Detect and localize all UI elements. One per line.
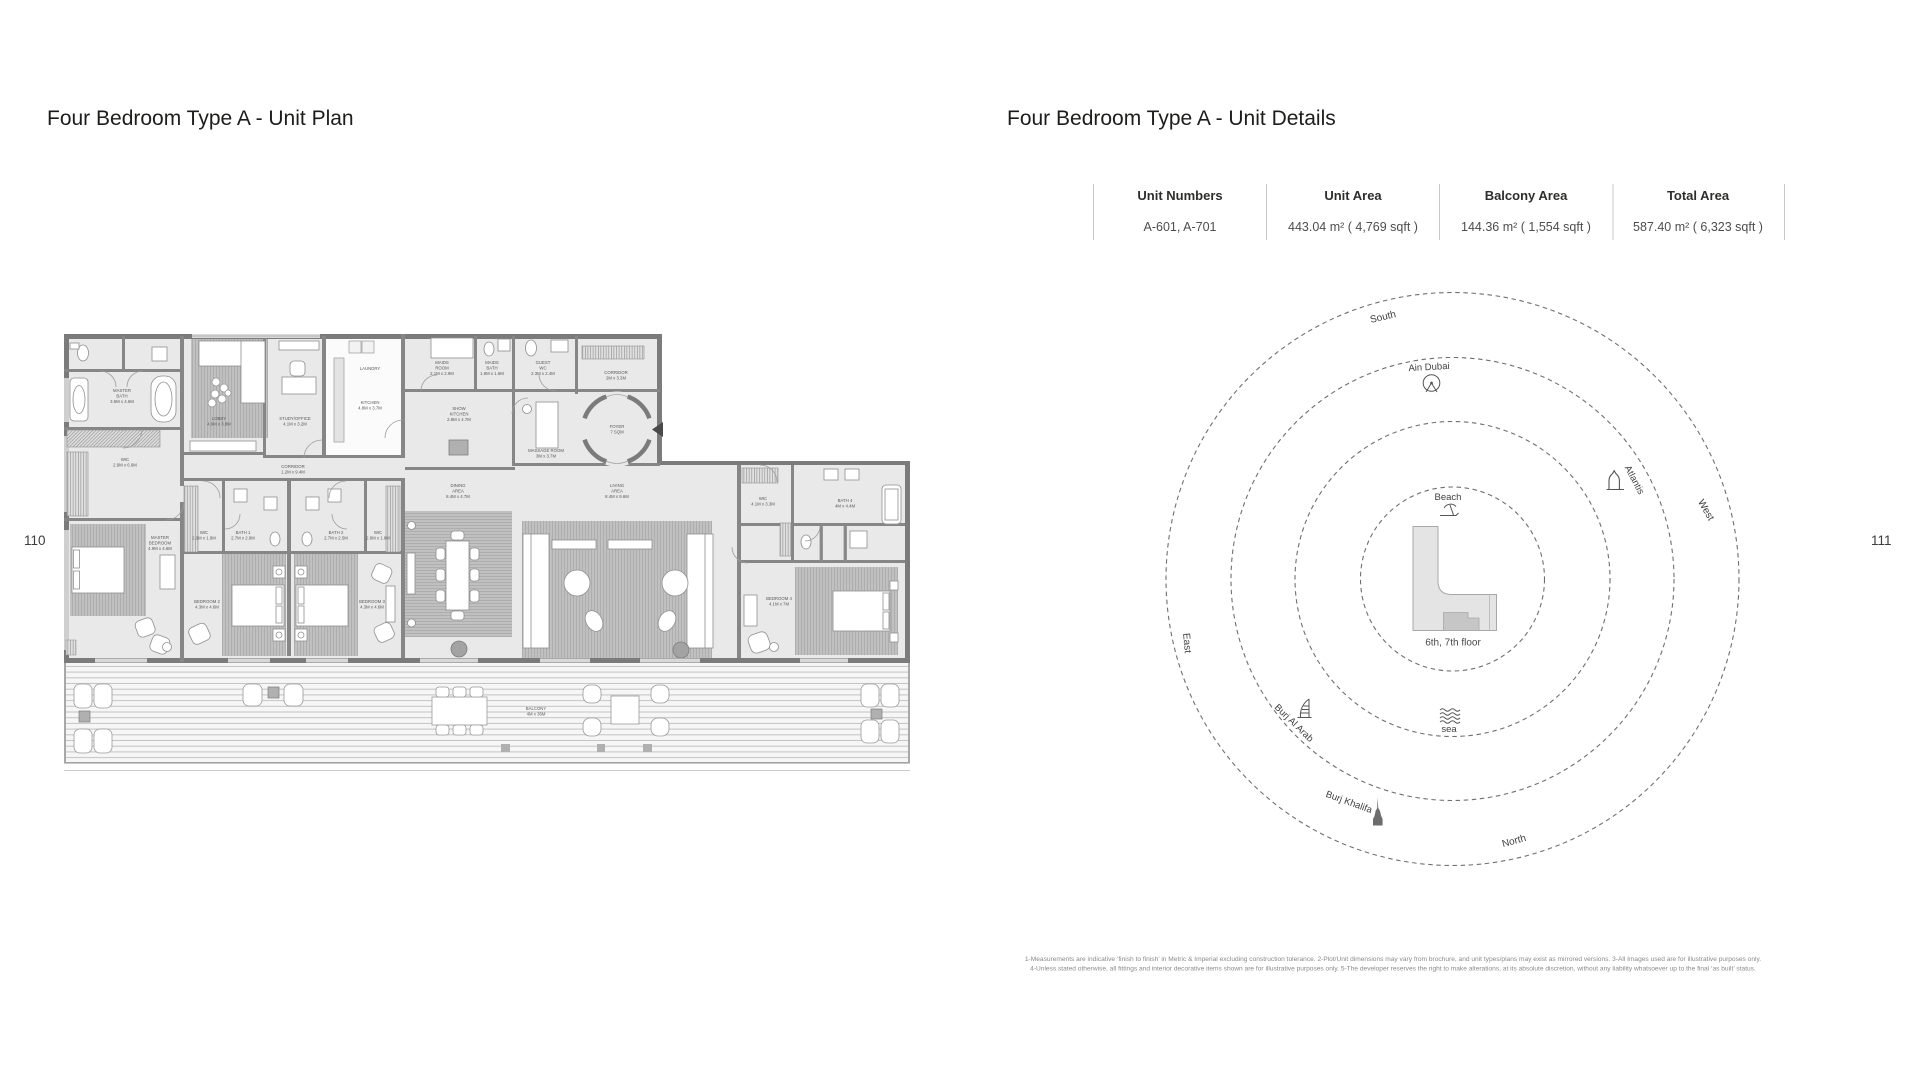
svg-text:BEDROOM 4: BEDROOM 4 — [766, 596, 792, 601]
svg-text:MASTER: MASTER — [151, 535, 169, 540]
svg-text:SHOW: SHOW — [452, 406, 466, 411]
svg-text:FOYER: FOYER — [610, 424, 625, 429]
svg-text:MAIDS: MAIDS — [435, 360, 449, 365]
svg-text:East: East — [1180, 633, 1193, 654]
svg-text:BATH: BATH — [116, 394, 127, 399]
svg-text:443.04 m² ( 4,769 sqft ): 443.04 m² ( 4,769 sqft ) — [1288, 220, 1418, 234]
svg-text:Four Bedroom Type A - Unit Pla: Four Bedroom Type A - Unit Plan — [47, 107, 354, 130]
svg-text:4M x 4.4M: 4M x 4.4M — [835, 504, 855, 509]
svg-text:8.4M x 9.6M: 8.4M x 9.6M — [605, 494, 629, 499]
svg-text:1.2M x 9.4M: 1.2M x 9.4M — [281, 470, 305, 475]
svg-text:2.8M x 4.7M: 2.8M x 4.7M — [447, 417, 471, 422]
svg-text:BATH: BATH — [486, 366, 497, 371]
svg-text:KITCHEN: KITCHEN — [450, 412, 469, 417]
svg-text:MAIDS: MAIDS — [485, 360, 499, 365]
svg-text:Beach: Beach — [1435, 492, 1462, 503]
svg-text:4.1M x 3.2M: 4.1M x 3.2M — [283, 422, 307, 427]
svg-text:DINING: DINING — [450, 483, 466, 488]
svg-text:AREA: AREA — [611, 489, 623, 494]
svg-text:110: 110 — [24, 533, 46, 548]
svg-text:Unit Area: Unit Area — [1324, 188, 1382, 203]
svg-text:Unit Numbers: Unit Numbers — [1137, 188, 1222, 203]
svg-text:WIC: WIC — [374, 530, 382, 535]
svg-text:4.8M x 3.7M: 4.8M x 3.7M — [358, 406, 382, 411]
svg-text:BALCONY: BALCONY — [526, 706, 547, 711]
svg-text:4.1M x 3.3M: 4.1M x 3.3M — [751, 502, 775, 507]
svg-text:8.4M x 4.7M: 8.4M x 4.7M — [446, 494, 470, 499]
svg-text:CORRIDOR: CORRIDOR — [281, 464, 304, 469]
svg-text:BEDROOM 3: BEDROOM 3 — [359, 599, 385, 604]
svg-text:1.9M x 1.6M: 1.9M x 1.6M — [480, 371, 504, 376]
svg-text:WIC: WIC — [759, 496, 767, 501]
svg-text:Four Bedroom Type A - Unit Det: Four Bedroom Type A - Unit Details — [1007, 107, 1336, 130]
svg-text:4.9M x 3.8M: 4.9M x 3.8M — [207, 422, 231, 427]
svg-text:Balcony Area: Balcony Area — [1485, 188, 1568, 203]
svg-text:GUEST: GUEST — [536, 360, 551, 365]
svg-text:AREA: AREA — [452, 489, 464, 494]
svg-text:ROOM: ROOM — [435, 366, 449, 371]
svg-text:BATH 1: BATH 1 — [236, 530, 251, 535]
svg-text:4.3M x 4.6M: 4.3M x 4.6M — [195, 605, 219, 610]
svg-text:144.36 m² ( 1,554 sqft ): 144.36 m² ( 1,554 sqft ) — [1461, 220, 1591, 234]
svg-text:6th, 7th floor: 6th, 7th floor — [1425, 638, 1481, 649]
svg-text:BATH 4: BATH 4 — [838, 498, 853, 503]
svg-text:4M x 36M: 4M x 36M — [527, 712, 546, 717]
svg-text:LIVING: LIVING — [610, 483, 625, 488]
svg-text:2.3M x 2.4M: 2.3M x 2.4M — [531, 371, 555, 376]
svg-text:Ain Dubai: Ain Dubai — [1408, 361, 1450, 374]
svg-text:4.1M x 7M: 4.1M x 7M — [769, 602, 789, 607]
svg-text:111: 111 — [1871, 533, 1892, 548]
svg-text:2.9M x 1.8M: 2.9M x 1.8M — [192, 536, 216, 541]
svg-text:587.40 m² ( 6,323 sqft ): 587.40 m² ( 6,323 sqft ) — [1633, 220, 1763, 234]
svg-text:2.9M x 6.6M: 2.9M x 6.6M — [113, 463, 137, 468]
svg-text:LOBBY: LOBBY — [212, 416, 226, 421]
svg-text:LAUNDRY: LAUNDRY — [360, 366, 381, 371]
svg-text:3.6M x 4.6M: 3.6M x 4.6M — [110, 399, 134, 404]
svg-text:2.7M x 2.5M: 2.7M x 2.5M — [324, 536, 348, 541]
svg-text:BATH 2: BATH 2 — [329, 530, 344, 535]
svg-text:BEDROOM 2: BEDROOM 2 — [194, 599, 220, 604]
svg-text:1-Measurements are indicative: 1-Measurements are indicative ‘finish to… — [1025, 956, 1761, 963]
svg-text:2M x 3.3M: 2M x 3.3M — [606, 376, 626, 381]
svg-text:4-Unless stated otherwise, all: 4-Unless stated otherwise, all fittings … — [1030, 966, 1756, 973]
svg-text:BEDROOM: BEDROOM — [149, 541, 172, 546]
svg-text:7 SQM: 7 SQM — [610, 430, 624, 435]
svg-text:STUDY/OFFICE: STUDY/OFFICE — [279, 416, 311, 421]
svg-text:2.7M x 2.8M: 2.7M x 2.8M — [231, 536, 255, 541]
svg-text:4.3M x 4.6M: 4.3M x 4.6M — [360, 605, 384, 610]
svg-text:KITCHEN: KITCHEN — [361, 400, 380, 405]
svg-text:2.1M x 2.9M: 2.1M x 2.9M — [430, 371, 454, 376]
svg-text:4.9M x 4.6M: 4.9M x 4.6M — [148, 546, 172, 551]
svg-text:CORRIDOR: CORRIDOR — [604, 370, 627, 375]
svg-text:MASSAGE ROOM: MASSAGE ROOM — [528, 448, 564, 453]
svg-text:WC: WC — [539, 366, 546, 371]
svg-text:3M x 3.7M: 3M x 3.7M — [536, 454, 556, 459]
svg-text:2.9M x 1.8M: 2.9M x 1.8M — [366, 536, 390, 541]
svg-text:A-601, A-701: A-601, A-701 — [1144, 220, 1217, 234]
svg-text:WIC: WIC — [121, 457, 129, 462]
svg-text:Total Area: Total Area — [1667, 188, 1730, 203]
svg-text:sea: sea — [1441, 724, 1457, 735]
svg-text:MASTER: MASTER — [113, 388, 131, 393]
svg-text:WIC: WIC — [200, 530, 208, 535]
